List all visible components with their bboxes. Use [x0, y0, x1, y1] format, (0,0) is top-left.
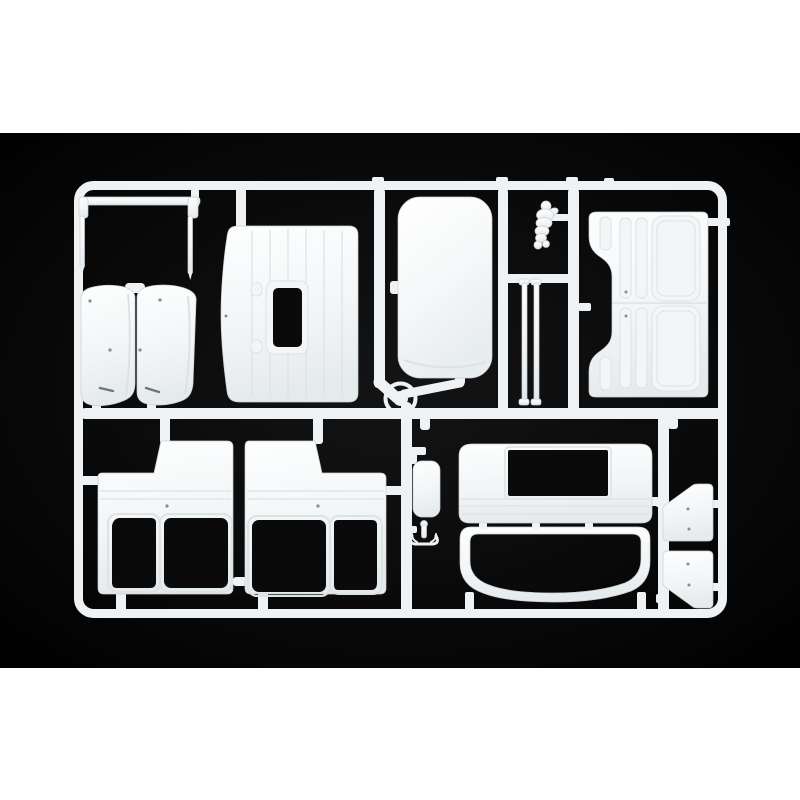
window-opening	[164, 518, 228, 588]
cab-back-panel	[221, 226, 358, 402]
back-window-opening	[273, 288, 302, 347]
sprue-photo	[0, 0, 800, 800]
front-opening	[508, 450, 608, 496]
roof-panel	[390, 197, 492, 378]
window-opening	[112, 518, 156, 588]
product-photo-page	[0, 0, 800, 800]
window-opening	[334, 520, 377, 590]
window-opening	[252, 520, 326, 592]
